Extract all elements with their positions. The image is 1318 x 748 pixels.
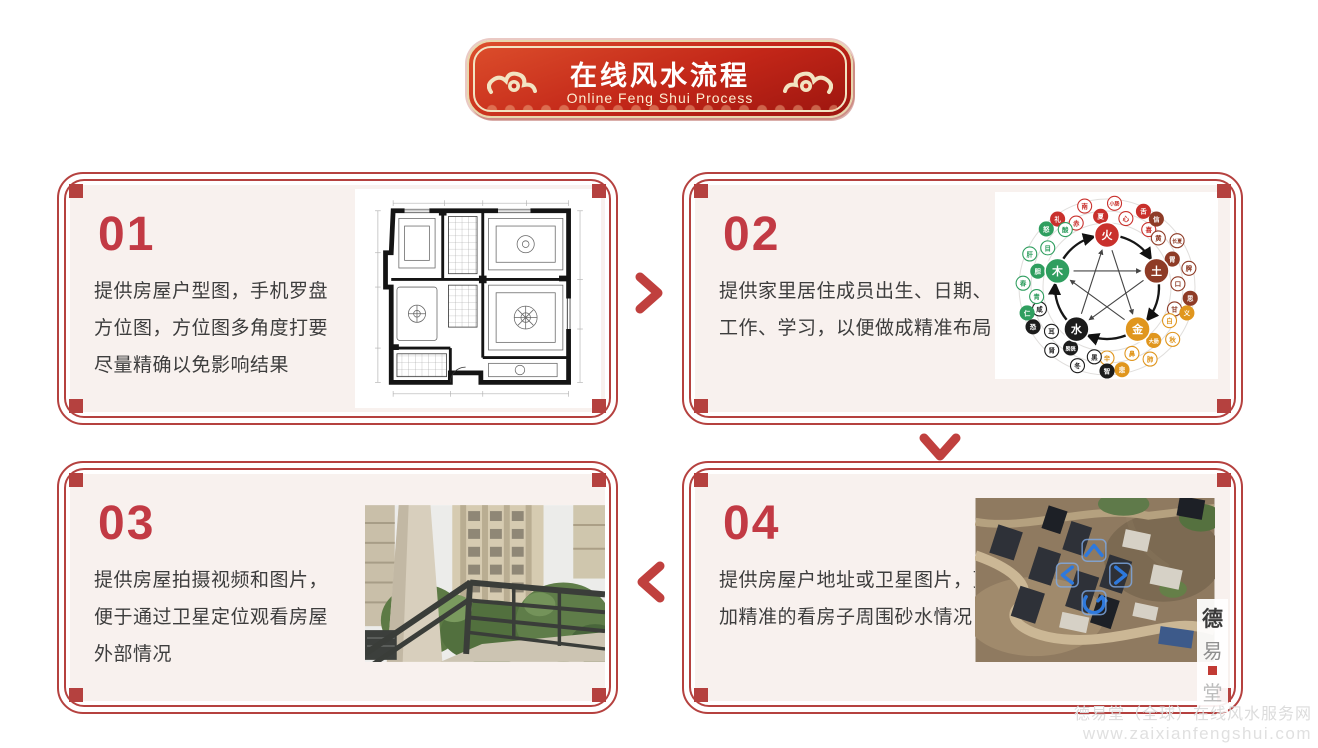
svg-text:心: 心 — [1123, 214, 1130, 223]
svg-text:舌: 舌 — [1140, 207, 1147, 216]
step-description: 提供房屋拍摄视频和图片，便于通过卫星定位观看房屋外部情况 — [94, 562, 340, 673]
svg-text:脾: 脾 — [1185, 264, 1193, 273]
balcony-photo-image — [365, 505, 605, 662]
corner-ornament — [694, 399, 708, 413]
site-url: www.zaixianfengshui.com — [1074, 724, 1312, 744]
svg-text:冬: 冬 — [1074, 361, 1081, 370]
svg-text:春: 春 — [1019, 279, 1027, 288]
corner-ornament — [1217, 473, 1231, 487]
svg-text:土: 土 — [1151, 264, 1162, 278]
svg-text:肝: 肝 — [1027, 249, 1034, 258]
floor-plan-image — [355, 189, 601, 408]
corner-ornament — [592, 184, 606, 198]
corner-ornament — [694, 184, 708, 198]
svg-text:膀胱: 膀胱 — [1066, 345, 1076, 352]
svg-text:口: 口 — [1175, 280, 1182, 288]
svg-text:夏: 夏 — [1097, 212, 1104, 221]
svg-text:肺: 肺 — [1147, 355, 1154, 364]
step-description: 提供家里居住成员出生、日期、工作、学习，以便做成精准布局 — [719, 273, 1005, 347]
card-body: 03 提供房屋拍摄视频和图片，便于通过卫星定位观看房屋外部情况 — [70, 474, 605, 701]
card-body: 01 提供房屋户型图，手机罗盘方位图，方位图多角度打要尽量精确以免影响结果 — [70, 185, 605, 412]
svg-text:甘: 甘 — [1171, 304, 1178, 313]
svg-text:信: 信 — [1153, 214, 1160, 223]
arrow-right-icon — [634, 271, 664, 315]
svg-text:恐: 恐 — [1030, 322, 1037, 331]
svg-text:肾: 肾 — [1048, 346, 1055, 355]
stamp-glyph: 易 — [1203, 635, 1223, 664]
svg-text:秋: 秋 — [1169, 335, 1176, 344]
card-body: 04 提供房屋户地址或卫星图片，更加精准的看房子周围砂水情况 — [695, 474, 1230, 701]
svg-text:赤: 赤 — [1073, 218, 1080, 227]
arrow-left-icon — [636, 560, 666, 604]
svg-text:辛: 辛 — [1104, 353, 1111, 362]
svg-text:悲: 悲 — [1119, 365, 1126, 374]
step-number: 04 — [723, 496, 780, 551]
svg-text:火: 火 — [1102, 229, 1114, 242]
svg-text:青: 青 — [1033, 292, 1040, 301]
arrow-down-icon — [918, 432, 962, 462]
svg-text:黄: 黄 — [1155, 233, 1162, 242]
svg-text:喜: 喜 — [1145, 225, 1152, 234]
corner-ornament — [69, 399, 83, 413]
step-card-3: 03 提供房屋拍摄视频和图片，便于通过卫星定位观看房屋外部情况 — [57, 461, 618, 714]
svg-text:礼: 礼 — [1054, 214, 1061, 223]
corner-ornament — [69, 184, 83, 198]
corner-ornament — [694, 473, 708, 487]
corner-ornament — [69, 473, 83, 487]
svg-text:仁: 仁 — [1024, 308, 1031, 317]
svg-text:耳: 耳 — [1048, 328, 1055, 336]
svg-text:怒: 怒 — [1043, 224, 1050, 233]
svg-text:大肠: 大肠 — [1149, 338, 1159, 345]
step-description: 提供房屋户型图，手机罗盘方位图，方位图多角度打要尽量精确以免影响结果 — [94, 273, 340, 384]
satellite-photo-image — [975, 498, 1215, 662]
svg-text:目: 目 — [1044, 244, 1051, 252]
page: 在线风水流程 Online Feng Shui Process 01 提供房屋户… — [0, 0, 1318, 748]
step-card-1: 01 提供房屋户型图，手机罗盘方位图，方位图多角度打要尽量精确以免影响结果 — [57, 172, 618, 425]
svg-text:智: 智 — [1104, 366, 1111, 375]
site-watermark: 德易堂（全球）在线风水服务网 www.zaixianfengshui.com — [1074, 700, 1312, 744]
step-number: 02 — [723, 207, 780, 262]
corner-ornament — [592, 473, 606, 487]
svg-text:水: 水 — [1071, 322, 1083, 336]
svg-text:长夏: 长夏 — [1172, 238, 1183, 245]
svg-text:黑: 黑 — [1091, 352, 1098, 361]
svg-text:胆: 胆 — [1035, 267, 1042, 276]
svg-text:咸: 咸 — [1036, 304, 1043, 313]
step-number: 01 — [98, 207, 155, 262]
card-body: 02 提供家里居住成员出生、日期、工作、学习，以便做成精准布局 喜舌心小肠夏南赤… — [695, 185, 1230, 412]
banner-title: 在线风水流程 — [469, 54, 851, 93]
svg-text:木: 木 — [1051, 264, 1064, 278]
corner-ornament — [592, 688, 606, 702]
corner-ornament — [592, 399, 606, 413]
corner-ornament — [1217, 184, 1231, 198]
svg-text:鼻: 鼻 — [1129, 349, 1136, 358]
step-description: 提供房屋户地址或卫星图片，更加精准的看房子周围砂水情况 — [719, 562, 1005, 636]
corner-ornament — [69, 688, 83, 702]
step-number: 03 — [98, 496, 155, 551]
svg-text:小肠: 小肠 — [1110, 201, 1120, 208]
svg-text:金: 金 — [1131, 322, 1144, 336]
svg-text:白: 白 — [1166, 316, 1173, 325]
site-name: 德易堂（全球）在线风水服务网 — [1074, 700, 1312, 724]
banner-scallop-ornament — [483, 99, 837, 110]
brand-stamp: 德 易 堂 — [1197, 599, 1228, 712]
corner-ornament — [1217, 399, 1231, 413]
stamp-red-seal — [1208, 666, 1217, 675]
svg-text:义: 义 — [1183, 308, 1191, 317]
stamp-glyph: 德 — [1202, 603, 1223, 633]
process-banner: 在线风水流程 Online Feng Shui Process — [467, 40, 853, 118]
step-card-4: 04 提供房屋户地址或卫星图片，更加精准的看房子周围砂水情况 — [682, 461, 1243, 714]
svg-text:胃: 胃 — [1169, 254, 1176, 263]
svg-text:南: 南 — [1081, 201, 1088, 210]
svg-text:思: 思 — [1187, 294, 1194, 303]
step-card-2: 02 提供家里居住成员出生、日期、工作、学习，以便做成精准布局 喜舌心小肠夏南赤… — [682, 172, 1243, 425]
svg-text:酸: 酸 — [1062, 225, 1069, 234]
corner-ornament — [694, 688, 708, 702]
five-elements-diagram-image: 喜舌心小肠夏南赤礼火甘思口脾胃长夏黄信土辛悲鼻肺大肠秋白义金咸恐耳肾膀胱冬黑智水… — [995, 192, 1218, 379]
